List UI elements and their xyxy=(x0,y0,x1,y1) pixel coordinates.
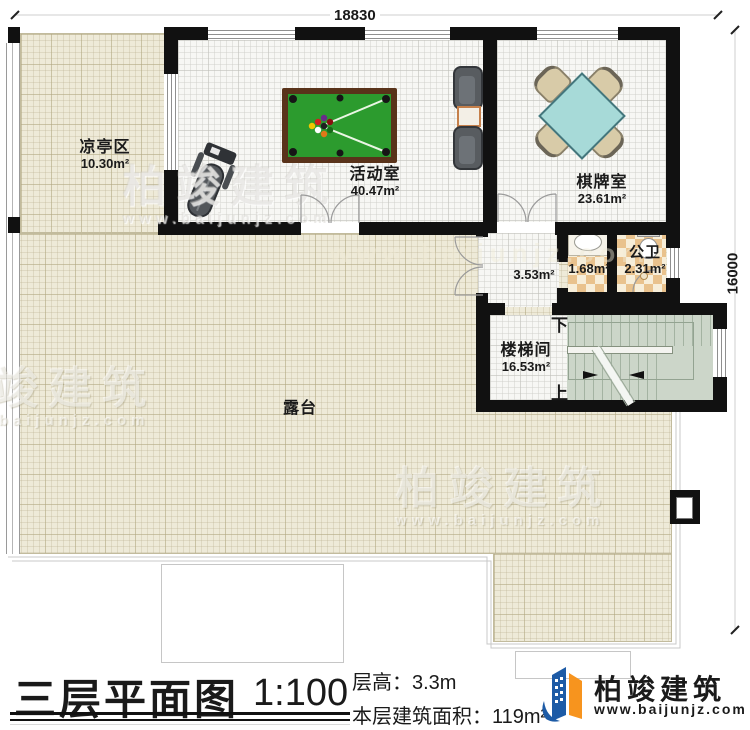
room-area: 40.47m² xyxy=(330,184,420,199)
plan-title: 三层平面图 xyxy=(14,666,239,727)
title-underline-faint xyxy=(10,724,350,725)
wall xyxy=(476,222,488,237)
stairs-up-label: 上 xyxy=(551,379,568,404)
lower-roof-outline-left xyxy=(161,564,344,663)
terrace-left-railing xyxy=(6,43,20,554)
room-area: 3.53m² xyxy=(513,267,554,282)
armchair xyxy=(453,126,483,170)
room-label-pavilion: 凉亭区 10.30m² xyxy=(60,139,150,171)
brand-site: www.baijunjz.com xyxy=(594,701,747,717)
room-area: 1.68m² xyxy=(568,261,609,276)
column xyxy=(8,27,20,43)
window xyxy=(365,27,450,40)
plan-scale: 1:100 xyxy=(253,672,348,715)
terrace-floor-extension xyxy=(493,553,672,642)
window xyxy=(208,27,295,40)
room-name: 活动室 xyxy=(330,166,420,184)
room-label-wc: 公卫 2.31m² xyxy=(618,245,672,276)
title-underline-thick xyxy=(10,712,350,715)
dimension-right: 16000 xyxy=(725,235,742,313)
sink-icon xyxy=(574,233,602,251)
stairs-handrail xyxy=(567,346,673,354)
wall xyxy=(359,222,485,235)
room-area: 10.30m² xyxy=(60,157,150,172)
wall xyxy=(295,27,365,40)
wall xyxy=(476,400,727,412)
wall xyxy=(476,303,490,412)
room-label-activity: 活动室 40.47m² xyxy=(330,166,420,198)
wall xyxy=(666,27,680,233)
building-logo-icon xyxy=(536,661,592,727)
wall xyxy=(158,222,301,235)
room-name: 棋牌室 xyxy=(557,174,647,192)
room-area: 23.61m² xyxy=(557,192,647,207)
terrace-column-inner xyxy=(676,497,693,519)
pool-table xyxy=(282,88,397,163)
wall xyxy=(555,222,680,235)
wall xyxy=(557,222,568,262)
armchair xyxy=(453,66,483,110)
room-label-chess: 棋牌室 23.61m² xyxy=(557,174,647,206)
wall xyxy=(483,27,497,233)
wall xyxy=(666,278,680,304)
wall xyxy=(713,377,727,412)
window xyxy=(714,329,726,377)
wall xyxy=(552,303,727,315)
room-name: 公卫 xyxy=(618,245,672,262)
title-underline-thin xyxy=(10,719,350,721)
window xyxy=(537,27,618,40)
column xyxy=(8,217,20,233)
floor-plan-canvas: 柏竣建筑 www.baijunjz.com 柏竣建筑 www.baijunjz.… xyxy=(0,0,750,730)
dimension-top: 18830 xyxy=(330,7,380,24)
room-name: 凉亭区 xyxy=(60,139,150,157)
room-name: 露台 xyxy=(283,400,317,417)
wall xyxy=(607,222,617,292)
floor-height-text: 层高：3.3m xyxy=(352,666,456,695)
room-area: 16.53m² xyxy=(490,360,562,375)
room-label-hall: 3.53m² xyxy=(503,268,565,283)
wall xyxy=(164,27,178,74)
room-area: 2.31m² xyxy=(618,262,672,277)
floor-area-text: 本层建筑面积：119m² xyxy=(352,700,547,729)
room-name: 楼梯间 xyxy=(490,342,562,360)
room-label-terrace: 露台 xyxy=(268,400,332,418)
window xyxy=(164,74,178,170)
stairs-down-label: 下 xyxy=(551,311,568,336)
room-label-wash: 1.68m² xyxy=(565,262,613,277)
side-table xyxy=(457,106,481,127)
room-label-stairwell: 楼梯间 16.53m² xyxy=(490,342,562,374)
pavilion-floor xyxy=(20,33,166,233)
